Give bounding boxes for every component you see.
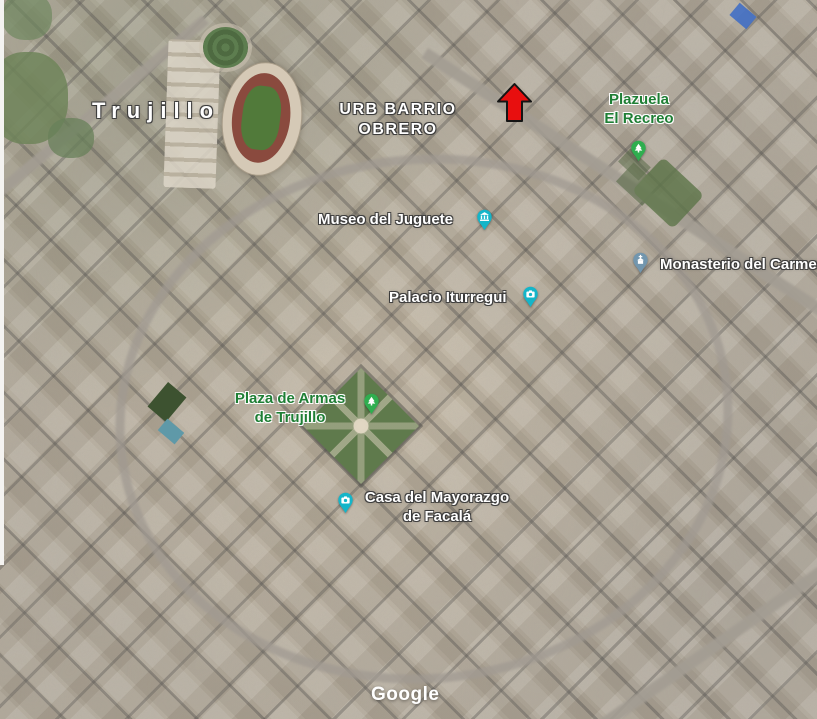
camera-pin-icon bbox=[522, 286, 539, 308]
red-up-arrow-annotation bbox=[496, 82, 533, 123]
plazuela-el-recreo-park-area bbox=[632, 157, 704, 229]
museum-pin-museo-del-juguete[interactable] bbox=[476, 209, 493, 231]
stadium-track bbox=[227, 70, 296, 166]
park-area-northwest bbox=[0, 52, 68, 144]
poi-label-line2: de Trujillo bbox=[215, 408, 365, 427]
poi-label-plazuela-el-recreo[interactable]: Plazuela El Recreo bbox=[579, 90, 699, 128]
poi-label-line2: de Facalá bbox=[357, 507, 517, 526]
poi-label-line1: Plaza de Armas bbox=[215, 389, 365, 408]
circular-arena bbox=[203, 27, 248, 68]
stadium bbox=[215, 58, 308, 181]
city-label-trujillo: Trujillo bbox=[92, 98, 220, 124]
poi-label-line2: El Recreo bbox=[579, 109, 699, 128]
avenue-southeast bbox=[596, 538, 817, 719]
church-pin-icon bbox=[632, 252, 649, 274]
google-watermark: Google bbox=[371, 684, 439, 706]
pool-area bbox=[158, 419, 184, 445]
poi-label-casa-del-mayorazgo[interactable]: Casa del Mayorazgo de Facalá bbox=[357, 488, 517, 526]
district-label-line2: OBRERO bbox=[328, 120, 468, 140]
left-edge-border bbox=[0, 0, 4, 565]
poi-label-monasterio-del-carmen[interactable]: Monasterio del Carmen bbox=[660, 256, 817, 273]
district-label-urb-barrio-obrero: URB BARRIO OBRERO bbox=[328, 100, 468, 140]
park-pin-plazuela-el-recreo[interactable] bbox=[630, 140, 647, 162]
poi-label-palacio-iturregui[interactable]: Palacio Iturregui bbox=[389, 289, 507, 306]
park-area-corner bbox=[2, 0, 52, 40]
park-area-small bbox=[48, 118, 94, 158]
blue-roof-building bbox=[729, 3, 756, 29]
park-pin-plaza-de-armas[interactable] bbox=[363, 393, 380, 415]
church-pin-monasterio-del-carmen[interactable] bbox=[632, 252, 649, 274]
poi-label-plaza-de-armas[interactable]: Plaza de Armas de Trujillo bbox=[215, 389, 365, 427]
museum-pin-icon bbox=[476, 209, 493, 231]
stadium-field bbox=[238, 84, 284, 152]
attraction-pin-casa-del-mayorazgo[interactable] bbox=[337, 492, 354, 514]
dark-green-field bbox=[148, 382, 187, 422]
tree-pin-icon bbox=[363, 393, 380, 415]
camera-pin-icon bbox=[337, 492, 354, 514]
attraction-pin-palacio-iturregui[interactable] bbox=[522, 286, 539, 308]
main-avenue-northeast bbox=[421, 48, 817, 319]
tree-pin-icon bbox=[630, 140, 647, 162]
poi-label-line1: Plazuela bbox=[579, 90, 699, 109]
poi-label-line1: Casa del Mayorazgo bbox=[357, 488, 517, 507]
stadium-stands bbox=[215, 58, 308, 181]
poi-label-museo-del-juguete[interactable]: Museo del Juguete bbox=[318, 211, 453, 228]
district-label-line1: URB BARRIO bbox=[328, 100, 468, 120]
satellite-map-canvas[interactable]: Trujillo URB BARRIO OBRERO Plazuela El R… bbox=[0, 0, 817, 719]
